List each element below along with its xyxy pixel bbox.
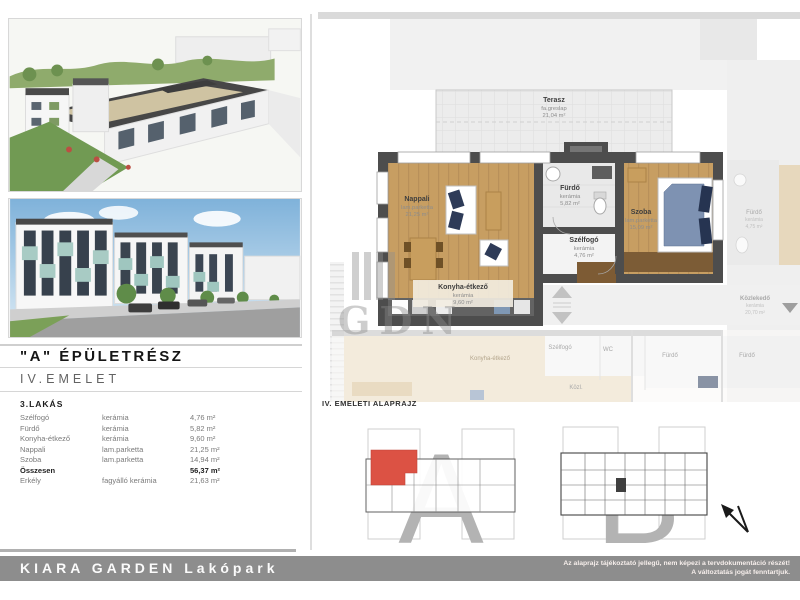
mattress	[664, 184, 704, 246]
szoba-name: Szoba	[631, 209, 652, 216]
brand-title: KIARA GARDEN Lakópark	[20, 560, 279, 576]
room-material: kerámia	[102, 413, 190, 424]
wall-segment	[543, 274, 723, 283]
window	[480, 152, 550, 163]
szoba-material: lam.parketta	[625, 218, 658, 224]
svg-text:20,70 m²: 20,70 m²	[745, 310, 765, 316]
building-title: "A" ÉPÜLETRÉSZ	[20, 348, 183, 365]
room-area: 5,82 m²	[190, 424, 250, 435]
wall-segment	[534, 163, 543, 326]
room-name: Összesen	[20, 466, 102, 477]
window	[398, 152, 470, 163]
keyplan-section: IV. EMELETI ALAPRAJZ A	[322, 399, 748, 571]
room-material: fagyálló kerámia	[102, 476, 190, 487]
chair	[436, 258, 443, 268]
divider	[0, 344, 302, 346]
chair	[436, 242, 443, 252]
keyplan-heading: IV. EMELETI ALAPRAJZ	[322, 399, 417, 408]
room-name: Erkély	[20, 476, 102, 487]
szelfogo-material: kerámia	[574, 246, 595, 252]
room-name: Szélfogó	[20, 413, 102, 424]
wall-segment	[615, 163, 624, 283]
room-name: Szoba	[20, 455, 102, 466]
aerial-render-image	[8, 18, 302, 192]
room-material: kerámia	[102, 424, 190, 435]
room-area: 21,25 m²	[190, 445, 250, 456]
appliance	[514, 300, 530, 314]
window	[713, 180, 723, 240]
neighbor-kozlekedo: Közlekedő	[740, 296, 770, 302]
terrace-material: fa.greslap	[541, 106, 566, 112]
room-material: lam.parketta	[102, 455, 190, 466]
keyplan-a: A	[366, 428, 515, 571]
neighbor-szelfogo: Szélfogó	[548, 345, 572, 351]
svg-text:kerámia: kerámia	[746, 303, 764, 309]
table-row: Szélfogó kerámia 4,76 m²	[20, 413, 290, 424]
neighbor-konyha: Konyha-étkező	[470, 356, 511, 362]
room-area: 56,37 m²	[190, 466, 250, 477]
room-material: lam.parketta	[102, 445, 190, 456]
washer	[592, 166, 612, 179]
terrace-area: 21,04 m²	[543, 113, 566, 119]
coffee-table	[486, 192, 501, 230]
floor-title: IV.EMELET	[20, 372, 120, 386]
room-area: 9,60 m²	[190, 434, 250, 445]
chair	[404, 258, 411, 268]
divider	[0, 549, 296, 552]
room-table: Szélfogó kerámia 4,76 m² Fürdő kerámia 5…	[20, 413, 290, 487]
table-row: Nappali lam.parketta 21,25 m²	[20, 445, 290, 456]
szoba-wardrobe	[624, 252, 713, 272]
disclaimer: Az alaprajz tájékoztató jellegű, nem kép…	[460, 559, 790, 577]
street-render-image	[8, 198, 302, 338]
room-area: 4,76 m²	[190, 413, 250, 424]
wall-segment	[543, 227, 618, 234]
sideboard	[628, 168, 646, 182]
table-row-total: Összesen 56,37 m²	[20, 466, 290, 477]
szelfogo-name: Szélfogó	[569, 237, 598, 244]
table-row: Erkély fagyálló kerámia 21,63 m²	[20, 476, 290, 487]
brochure-page: Terasz fa.greslap 21,04 m²	[0, 0, 800, 600]
svg-text:kerámia: kerámia	[745, 217, 763, 223]
room-name: Konyha-étkező	[20, 434, 102, 445]
disclaimer-line-1: Az alaprajz tájékoztató jellegű, nem kép…	[563, 560, 790, 567]
north-arrow-icon	[721, 504, 748, 532]
furdo-material: kerámia	[560, 194, 581, 200]
room-material	[102, 466, 190, 477]
window	[377, 218, 388, 252]
neighbor-furdo-2: Fürdő	[739, 353, 755, 359]
sink	[546, 167, 560, 181]
nappali-area: 21,25 m²	[406, 212, 429, 218]
watermark-text: GDN	[338, 298, 465, 343]
nappali-material: lam.parketta	[401, 205, 434, 211]
room-area: 14,94 m²	[190, 455, 250, 466]
table-row: Szoba lam.parketta 14,94 m²	[20, 455, 290, 466]
neighbor-furdo-1: Fürdő	[662, 353, 678, 359]
neighbor-furdo-right: Fürdő	[746, 210, 762, 216]
konyha-name: Konyha-étkező	[438, 284, 488, 291]
room-area: 21,63 m²	[190, 476, 250, 487]
terrace-name: Terasz	[543, 97, 565, 104]
divider	[0, 367, 302, 368]
szelfogo-area: 4,76 m²	[574, 253, 594, 259]
szoba-area: 15,09 m²	[630, 225, 653, 231]
apartment-title: 3.LAKÁS	[20, 399, 63, 409]
chair	[404, 242, 411, 252]
table-row: Konyha-étkező kerámia 9,60 m²	[20, 434, 290, 445]
neighbor-wc: WC	[603, 347, 614, 353]
toilet	[594, 198, 606, 214]
svg-text:4,75 m²: 4,75 m²	[746, 224, 763, 230]
disclaimer-line-2: A változtatás jogát fenntartjuk.	[691, 569, 790, 576]
room-name: Nappali	[20, 445, 102, 456]
dining-table	[410, 238, 436, 280]
furdo-area: 5,82 m²	[560, 201, 580, 207]
window	[636, 152, 700, 163]
keyplan-b: B	[561, 427, 707, 571]
table-row: Fürdő kerámia 5,82 m²	[20, 424, 290, 435]
window	[377, 172, 388, 204]
room-name: Fürdő	[20, 424, 102, 435]
room-material: kerámia	[102, 434, 190, 445]
divider	[0, 391, 302, 392]
neighbor-kozl: Közl.	[569, 385, 583, 391]
furdo-name: Fürdő	[560, 185, 580, 192]
nappali-name: Nappali	[404, 196, 429, 203]
